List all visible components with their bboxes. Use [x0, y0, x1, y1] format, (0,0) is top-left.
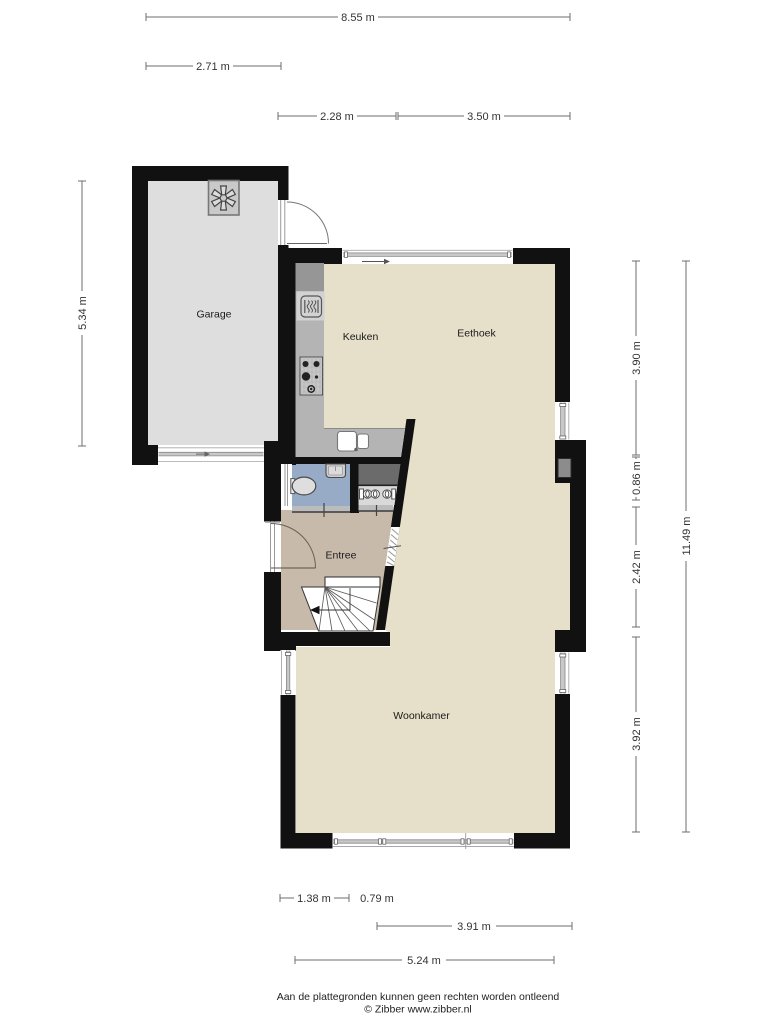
svg-text:1.38 m: 1.38 m — [297, 893, 331, 905]
svg-text:Eethoek: Eethoek — [457, 328, 496, 340]
svg-text:0.79 m: 0.79 m — [360, 893, 394, 905]
svg-text:2.28 m: 2.28 m — [320, 111, 354, 123]
svg-text:3.50 m: 3.50 m — [467, 111, 501, 123]
svg-text:3.91 m: 3.91 m — [457, 921, 491, 933]
svg-text:11.49 m: 11.49 m — [681, 517, 693, 556]
svg-text:0.86 m: 0.86 m — [631, 461, 643, 495]
svg-text:Garage: Garage — [196, 309, 231, 321]
svg-text:2.42 m: 2.42 m — [631, 550, 643, 584]
svg-text:5.24 m: 5.24 m — [407, 955, 441, 967]
svg-text:Woonkamer: Woonkamer — [393, 710, 450, 722]
svg-text:2.71 m: 2.71 m — [196, 61, 230, 73]
svg-text:Keuken: Keuken — [343, 331, 379, 343]
svg-text:Aan de plattegronden kunnen ge: Aan de plattegronden kunnen geen rechten… — [277, 991, 560, 1003]
svg-text:© Zibber www.zibber.nl: © Zibber www.zibber.nl — [364, 1004, 472, 1016]
svg-text:5.34 m: 5.34 m — [77, 296, 89, 330]
svg-text:Entree: Entree — [326, 550, 357, 562]
svg-text:3.92 m: 3.92 m — [631, 717, 643, 751]
svg-text:3.90 m: 3.90 m — [631, 341, 643, 375]
svg-text:8.55 m: 8.55 m — [341, 12, 375, 24]
